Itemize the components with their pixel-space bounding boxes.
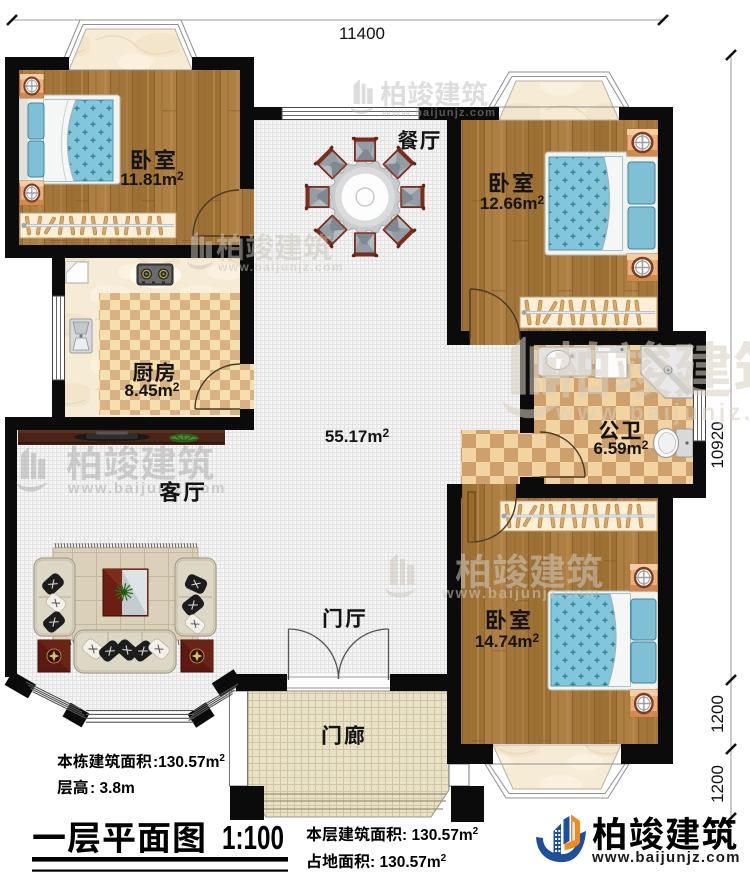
svg-text:: 130.57m2: : 130.57m2	[402, 826, 479, 844]
svg-text:www.baijunjz.com: www.baijunjz.com	[591, 849, 741, 866]
svg-text:1200: 1200	[708, 765, 727, 803]
svg-text:www.baijunjz.com: www.baijunjz.com	[381, 107, 496, 119]
svg-text:11.81m2: 11.81m2	[120, 169, 184, 189]
svg-text:www.baijunjz.com: www.baijunjz.com	[555, 399, 750, 425]
svg-text:55.17m2: 55.17m2	[325, 426, 390, 446]
svg-text:www.baijunjz.com: www.baijunjz.com	[441, 585, 600, 602]
svg-text:10920: 10920	[708, 421, 727, 468]
svg-text:14.74m2: 14.74m2	[475, 631, 540, 651]
svg-text:8.45m2: 8.45m2	[125, 380, 180, 400]
svg-text:12.66m2: 12.66m2	[480, 193, 545, 213]
svg-text::130.57m2: :130.57m2	[153, 753, 225, 771]
svg-text:www.baijunjz.com: www.baijunjz.com	[217, 260, 344, 274]
svg-text:11400: 11400	[339, 24, 385, 43]
svg-text:: 130.57m2: : 130.57m2	[370, 853, 447, 871]
svg-text:: 3.8m: : 3.8m	[90, 780, 135, 797]
svg-text:6.59m2: 6.59m2	[594, 438, 649, 458]
svg-text:1200: 1200	[708, 695, 727, 733]
svg-text:1:100: 1:100	[222, 819, 284, 856]
